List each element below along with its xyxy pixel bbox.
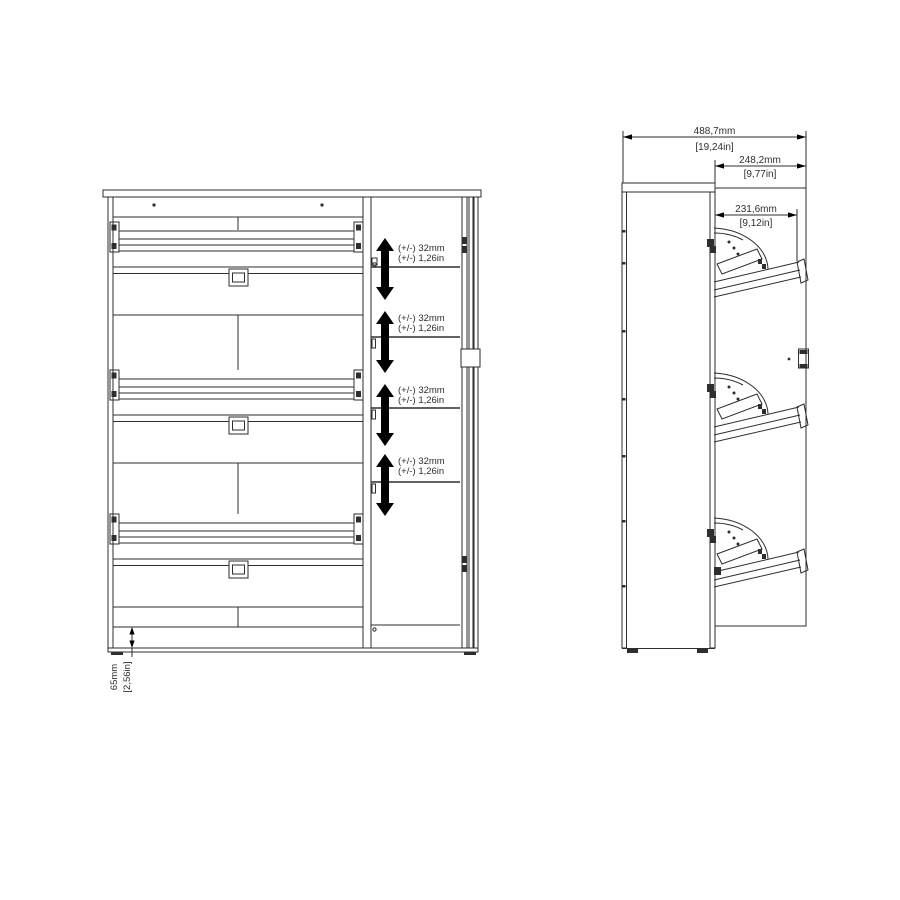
dim-overall-mm: 488,7mm — [694, 126, 736, 137]
door-handle-bracket — [800, 350, 808, 354]
drawer-mechanism-1 — [110, 222, 363, 286]
tilted-drawer-profile-1 — [707, 228, 808, 297]
door-fixing-hole — [788, 358, 791, 361]
shelf-pin — [372, 484, 376, 493]
top-panel — [103, 190, 481, 197]
dim-door-mm: 248,2mm — [739, 155, 781, 166]
up-down-arrow-icon — [376, 311, 394, 373]
tilted-drawers-side — [707, 228, 808, 587]
up-down-arrow-icon — [376, 238, 394, 300]
fixing-hole — [320, 203, 323, 206]
door-handle-bracket — [800, 364, 808, 368]
cam-fitting — [622, 585, 626, 588]
plinth-dim-mm: 65mm — [109, 664, 120, 690]
cam-fitting — [622, 330, 626, 333]
door-panel-edge — [462, 197, 467, 648]
fixing-hole — [152, 203, 155, 206]
dimension-arrowhead — [715, 163, 724, 168]
shoe-cabinet-drawing: (+/-) 32mm (+/-) 1,26in (+/-) 32mm (+/-)… — [0, 0, 900, 900]
technical-drawing-page: (+/-) 32mm (+/-) 1,26in (+/-) 32mm (+/-)… — [0, 0, 900, 900]
top-panel-side — [622, 183, 715, 192]
left-foot — [111, 652, 123, 655]
dimension-arrowhead — [623, 134, 632, 139]
drawer-mechanism-3 — [110, 514, 363, 578]
dimension-arrowhead — [129, 627, 134, 635]
dim-extension-mm: 231,6mm — [735, 204, 777, 215]
shelf-pin — [372, 339, 376, 348]
shelf-adjust-label-in: (+/-) 1,26in — [398, 466, 444, 477]
door-panel-edge — [469, 197, 473, 648]
dimension-arrowhead — [129, 641, 134, 649]
left-side-panel — [108, 197, 113, 648]
shelf-adjust-arrows: (+/-) 32mm (+/-) 1,26in (+/-) 32mm (+/-)… — [376, 238, 445, 516]
hinge-icon — [463, 565, 467, 572]
drawer-mechanism-2 — [110, 370, 363, 434]
right-foot — [464, 652, 476, 655]
door-handle — [461, 349, 480, 367]
dimension-arrowhead — [788, 212, 797, 217]
dimension-drawer-extension: 231,6mm [9,12in] — [715, 204, 797, 261]
drawer-stop-fitting — [714, 567, 721, 575]
dim-extension-in: [9,12in] — [740, 218, 773, 229]
dimension-arrowhead — [797, 134, 806, 139]
right-side-panel — [474, 197, 478, 648]
bottom-panel — [108, 648, 478, 652]
plinth-dim-in: [2,56in] — [122, 661, 133, 692]
foot — [627, 649, 638, 653]
cam-fitting — [622, 455, 626, 458]
dimension-door-width: 248,2mm [9,77in] — [715, 155, 806, 188]
hinge-icon — [463, 237, 467, 244]
center-divider-panel — [363, 197, 371, 648]
open-door-edge — [461, 197, 480, 648]
tilted-drawer-profile-2 — [707, 373, 808, 442]
front-view: (+/-) 32mm (+/-) 1,26in (+/-) 32mm (+/-)… — [103, 190, 481, 693]
dimension-arrowhead — [715, 212, 724, 217]
up-down-arrow-icon — [376, 454, 394, 516]
back-panel — [622, 192, 627, 648]
shelf-pin — [372, 410, 376, 419]
dim-overall-in: [19,24in] — [695, 142, 734, 153]
tilting-drawers-front — [110, 222, 363, 627]
cabinet-frame-side — [622, 183, 716, 653]
cam-fitting — [622, 262, 626, 265]
foot — [697, 649, 708, 653]
shelf-adjust-label-in: (+/-) 1,26in — [398, 395, 444, 406]
shelf-adjust-label-in: (+/-) 1,26in — [398, 323, 444, 334]
up-down-arrow-icon — [376, 384, 394, 446]
shelf-adjust-label-in: (+/-) 1,26in — [398, 253, 444, 264]
cam-fitting — [622, 398, 626, 401]
shelf-pin-hole — [373, 628, 376, 631]
dimension-arrowhead — [797, 163, 806, 168]
cam-fitting — [622, 230, 626, 233]
cam-fitting — [622, 520, 626, 523]
side-view: 488,7mm [19,24in] 248,2mm [9,77in] 231,6… — [622, 126, 809, 653]
hinge-icon — [463, 246, 467, 253]
dim-door-in: [9,77in] — [744, 169, 777, 180]
tilted-drawer-profile-3 — [707, 518, 808, 587]
hinge-icon — [463, 556, 467, 563]
